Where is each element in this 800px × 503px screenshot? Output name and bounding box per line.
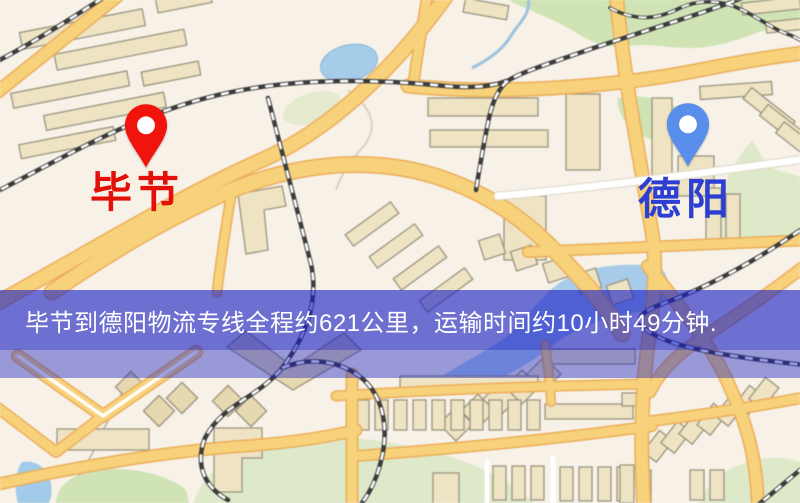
pin-shape <box>667 103 709 166</box>
route-info-banner-secondary-band <box>0 350 800 378</box>
route-info-banner: 毕节到德阳物流专线全程约621公里，运输时间约10小时49分钟. <box>0 290 800 350</box>
destination-city-label: 德阳 <box>638 179 734 222</box>
destination-pin-icon <box>663 102 713 169</box>
pin-shape <box>125 104 167 167</box>
map-canvas <box>0 0 800 503</box>
origin-city-label: 毕节 <box>90 172 184 214</box>
origin-pin <box>121 103 171 170</box>
map-screenshot: 毕节 德阳 毕节到德阳物流专线全程约621公里，运输时间约10小时49分钟. <box>0 0 800 503</box>
pin-hole <box>679 115 697 133</box>
destination-pin <box>663 102 713 169</box>
origin-pin-icon <box>121 103 171 170</box>
pin-hole <box>137 116 155 134</box>
route-info-text: 毕节到德阳物流专线全程约621公里，运输时间约10小时49分钟. <box>0 303 717 338</box>
